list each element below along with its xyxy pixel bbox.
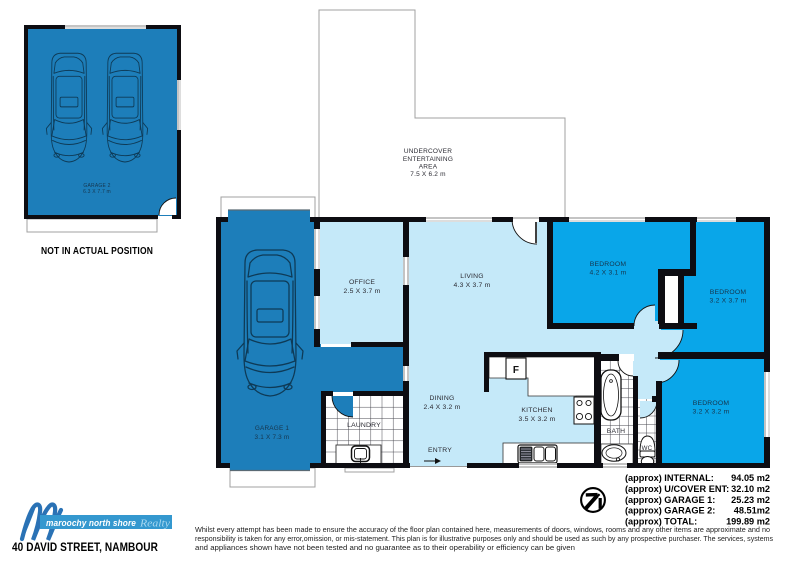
svg-text:3.2 X 3.2 m: 3.2 X 3.2 m	[693, 409, 730, 416]
svg-text:199.89 m2: 199.89 m2	[726, 517, 770, 527]
svg-text:3.5 X 3.2 m: 3.5 X 3.2 m	[519, 416, 556, 423]
svg-text:maroochy north shore: maroochy north shore	[46, 518, 136, 528]
svg-text:NOT IN ACTUAL POSITION: NOT IN ACTUAL POSITION	[41, 245, 153, 257]
svg-text:(approx) TOTAL:: (approx) TOTAL:	[625, 517, 697, 527]
svg-text:AREA: AREA	[419, 164, 438, 171]
svg-text:LAUNDRY: LAUNDRY	[347, 422, 381, 429]
svg-text:25.23 m2: 25.23 m2	[731, 495, 770, 505]
svg-text:ENTERTAINING: ENTERTAINING	[403, 156, 453, 163]
svg-text:and appliances shown have not: and appliances shown have not been teste…	[195, 545, 575, 552]
svg-text:(approx) INTERNAL:: (approx) INTERNAL:	[625, 473, 714, 483]
svg-text:2.4 X 3.2 m: 2.4 X 3.2 m	[424, 404, 461, 411]
svg-text:BEDROOM: BEDROOM	[693, 400, 730, 407]
svg-text:(approx) GARAGE 1:: (approx) GARAGE 1:	[625, 495, 715, 505]
svg-text:6.3 X 7.7 m: 6.3 X 7.7 m	[83, 189, 111, 195]
svg-text:3.2 X 3.7 m: 3.2 X 3.7 m	[710, 298, 747, 305]
svg-text:48.51m2: 48.51m2	[734, 506, 770, 516]
svg-text:Whilst every attempt has been: Whilst every attempt has been made to en…	[195, 527, 770, 534]
svg-text:DINING: DINING	[430, 395, 455, 402]
svg-text:94.05 m2: 94.05 m2	[731, 473, 770, 483]
svg-text:(approx) U/COVER ENT:: (approx) U/COVER ENT:	[625, 484, 729, 494]
svg-text:responsibility is taken for an: responsibility is taken for any error,om…	[195, 536, 774, 543]
svg-text:7.5 X 6.2 m: 7.5 X 6.2 m	[410, 171, 445, 178]
svg-text:ENTRY: ENTRY	[428, 447, 452, 454]
svg-text:4.2 X 3.1 m: 4.2 X 3.1 m	[590, 270, 627, 277]
svg-text:WC: WC	[642, 445, 653, 452]
svg-text:OFFICE: OFFICE	[349, 279, 375, 286]
svg-text:BATH: BATH	[607, 428, 625, 435]
svg-text:3.1 X 7.3 m: 3.1 X 7.3 m	[255, 434, 290, 441]
svg-text:GARAGE 1: GARAGE 1	[255, 425, 290, 432]
svg-text:(approx) GARAGE 2:: (approx) GARAGE 2:	[625, 506, 715, 516]
svg-text:40 DAVID STREET, NAMBOUR: 40 DAVID STREET, NAMBOUR	[12, 542, 159, 554]
svg-text:LIVING: LIVING	[460, 273, 484, 280]
svg-text:F: F	[513, 365, 519, 376]
svg-text:2.5 X 3.7 m: 2.5 X 3.7 m	[344, 288, 381, 295]
svg-text:BEDROOM: BEDROOM	[590, 261, 627, 268]
svg-text:KITCHEN: KITCHEN	[521, 407, 552, 414]
svg-text:4.3 X 3.7 m: 4.3 X 3.7 m	[454, 282, 491, 289]
svg-text:Realty: Realty	[139, 518, 170, 530]
svg-text:32.10 m2: 32.10 m2	[731, 484, 770, 494]
svg-text:BEDROOM: BEDROOM	[710, 289, 747, 296]
svg-text:UNDERCOVER: UNDERCOVER	[404, 148, 452, 155]
